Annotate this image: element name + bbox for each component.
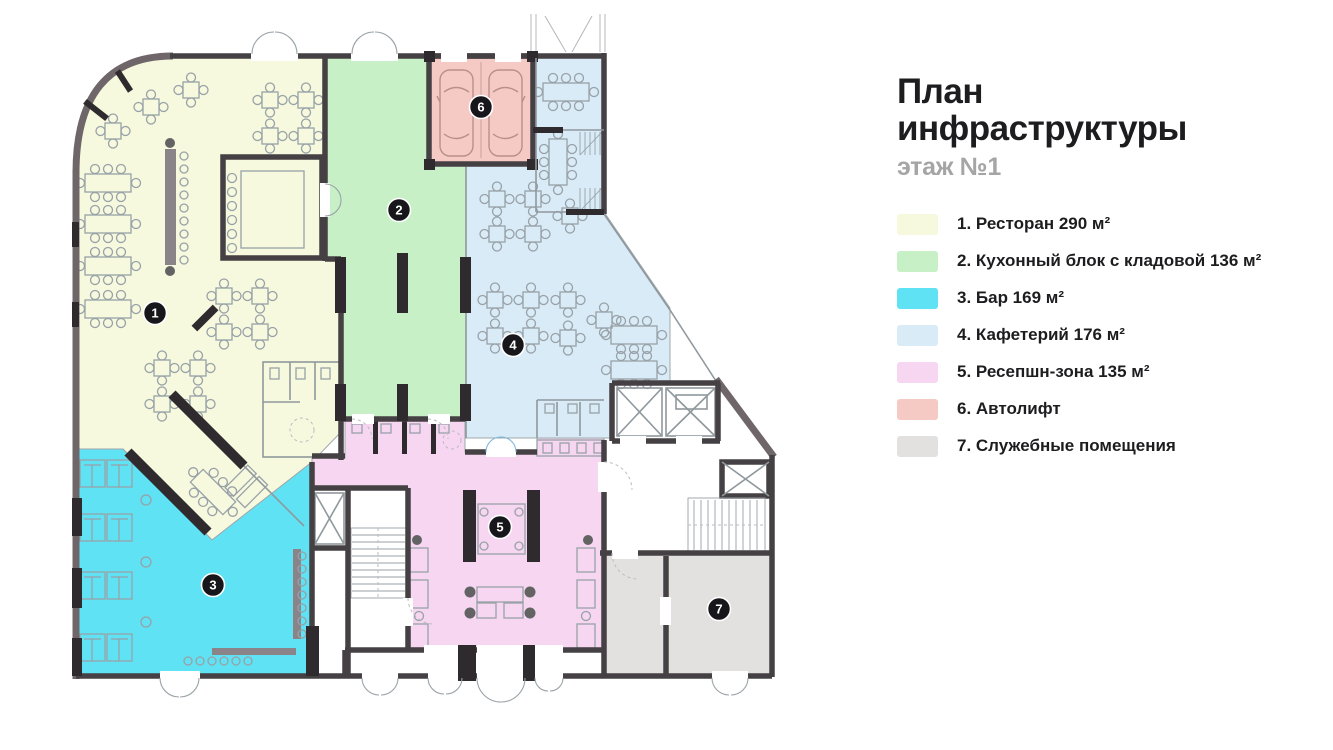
bar-counter xyxy=(165,149,176,265)
svg-text:3: 3 xyxy=(209,578,216,593)
ramp-lines xyxy=(531,14,605,52)
room-badge-5: 5 xyxy=(489,516,512,539)
legend-swatch-bar xyxy=(897,288,938,309)
legend-swatch-service xyxy=(897,436,938,457)
legend-item-carlift: 6. Автолифт xyxy=(897,399,1327,420)
room-service-area xyxy=(604,553,770,676)
legend-label-carlift: 6. Автолифт xyxy=(957,399,1061,419)
page-title-line2: инфраструктуры xyxy=(897,110,1327,147)
svg-text:1: 1 xyxy=(151,306,158,321)
legend-item-reception: 5. Ресепшн-зона 135 м² xyxy=(897,362,1327,383)
infrastructure-plan-page: 1 2 3 4 5 6 7 План инфраструктуры этаж №… xyxy=(0,0,1333,750)
room-badge-6: 6 xyxy=(470,96,493,119)
room-badge-3: 3 xyxy=(202,574,225,597)
legend-item-cafeteria: 4. Кафетерий 176 м² xyxy=(897,325,1327,346)
legend-label-reception: 5. Ресепшн-зона 135 м² xyxy=(957,362,1150,382)
legend-item-bar: 3. Бар 169 м² xyxy=(897,288,1327,309)
legend-swatch-carlift xyxy=(897,399,938,420)
svg-text:2: 2 xyxy=(395,203,402,218)
room-badge-2: 2 xyxy=(388,199,411,222)
legend: 1. Ресторан 290 м² 2. Кухонный блок с кл… xyxy=(897,214,1327,457)
legend-swatch-reception xyxy=(897,362,938,383)
legend-item-restaurant: 1. Ресторан 290 м² xyxy=(897,214,1327,235)
room-badge-4: 4 xyxy=(502,334,525,357)
info-panel: План инфраструктуры этаж №1 1. Ресторан … xyxy=(897,73,1327,473)
page-title-line1: План xyxy=(897,73,1327,110)
legend-swatch-restaurant xyxy=(897,214,938,235)
legend-label-cafeteria: 4. Кафетерий 176 м² xyxy=(957,325,1125,345)
stairs-right xyxy=(688,498,765,552)
elevator-single xyxy=(722,462,769,496)
page-subtitle: этаж №1 xyxy=(897,153,1327,182)
svg-text:5: 5 xyxy=(496,520,503,535)
floor-plan: 1 2 3 4 5 6 7 xyxy=(0,0,860,750)
svg-text:6: 6 xyxy=(477,100,484,115)
legend-item-kitchen: 2. Кухонный блок с кладовой 136 м² xyxy=(897,251,1327,272)
legend-label-restaurant: 1. Ресторан 290 м² xyxy=(957,214,1110,234)
legend-swatch-kitchen xyxy=(897,251,938,272)
legend-label-kitchen: 2. Кухонный блок с кладовой 136 м² xyxy=(957,251,1261,271)
legend-swatch-cafeteria xyxy=(897,325,938,346)
room-badge-7: 7 xyxy=(708,598,731,621)
legend-item-service: 7. Служебные помещения xyxy=(897,436,1327,457)
room-badge-1: 1 xyxy=(144,302,167,325)
svg-text:4: 4 xyxy=(509,338,517,353)
legend-label-service: 7. Служебные помещения xyxy=(957,436,1176,456)
svg-text:7: 7 xyxy=(715,602,722,617)
legend-label-bar: 3. Бар 169 м² xyxy=(957,288,1064,308)
page-title: План инфраструктуры xyxy=(897,73,1327,148)
elevator-block-right xyxy=(617,388,715,436)
